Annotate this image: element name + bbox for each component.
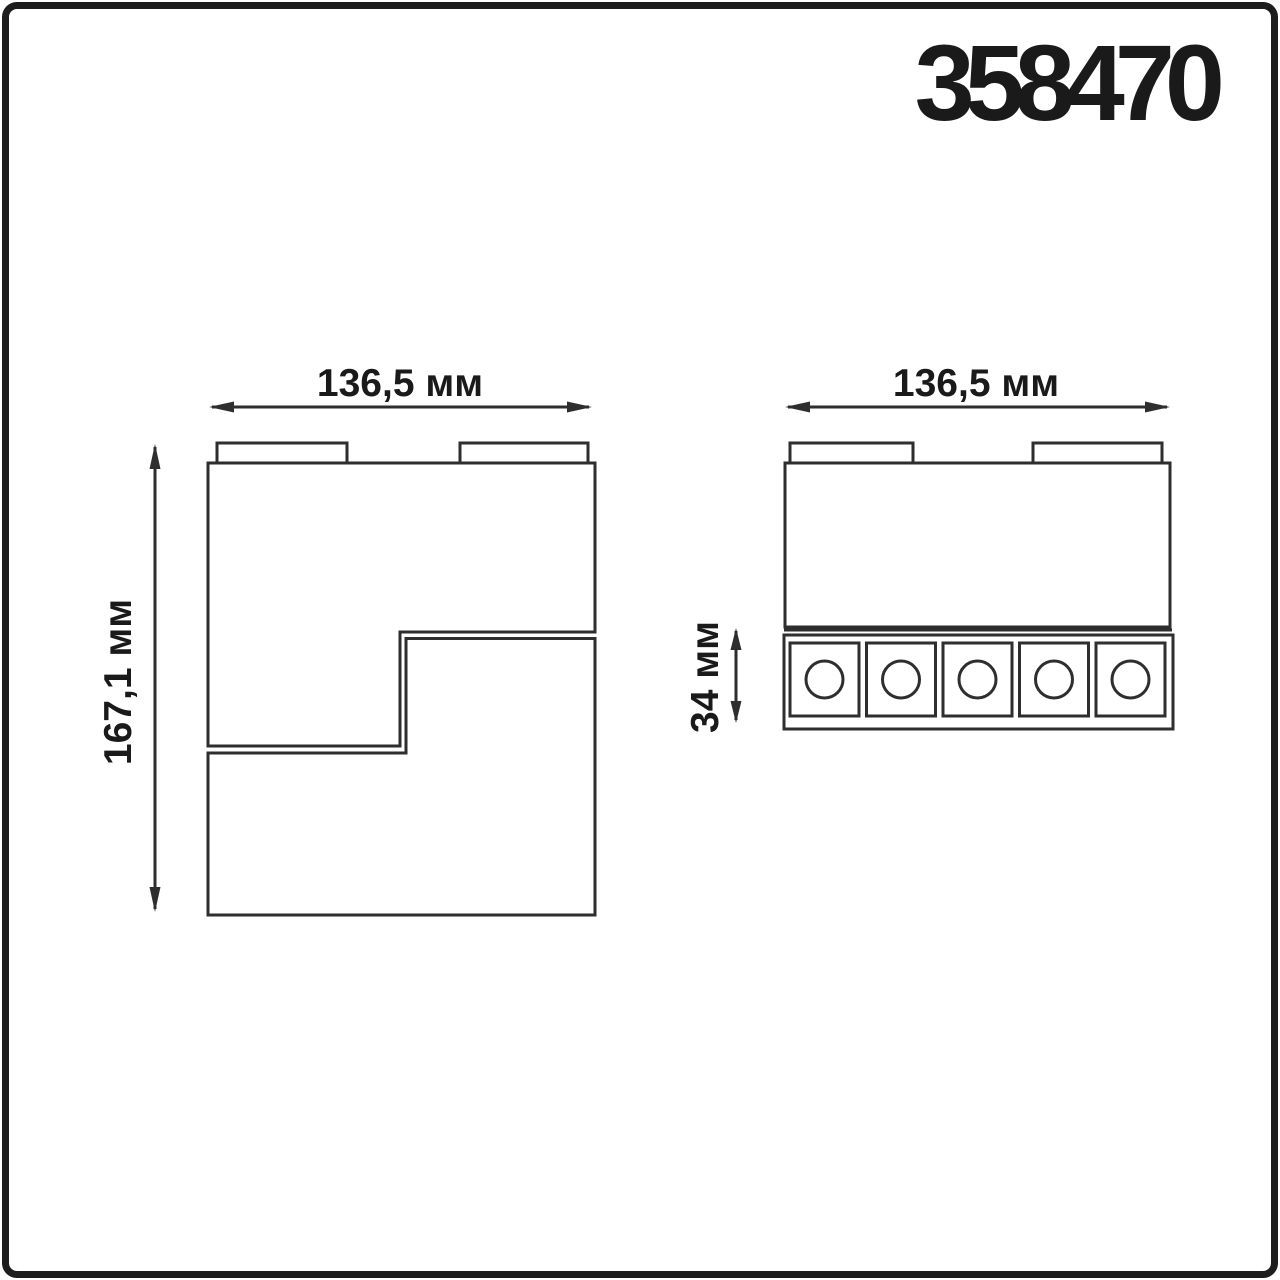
side-width-dimension-arrow-icon xyxy=(785,402,1170,413)
led-lens-circle xyxy=(883,661,920,698)
led-lens-circle xyxy=(1112,661,1149,698)
drawing-sheet: 358470 136,5 мм 136,5 мм 167,1 мм 34 мм xyxy=(0,0,1280,1280)
front-mount-tab-right xyxy=(460,443,588,463)
side-body xyxy=(785,463,1170,627)
side-mount-tab-right xyxy=(1033,443,1162,463)
led-row xyxy=(790,643,1165,716)
front-view-drawing xyxy=(150,402,596,916)
led-lens-circle xyxy=(806,661,843,698)
side-mount-tab-left xyxy=(790,443,913,463)
front-mount-tab-left xyxy=(217,443,347,463)
led-lens-circle xyxy=(1036,661,1073,698)
led-lens-circle xyxy=(959,661,996,698)
front-height-dimension-arrow-icon xyxy=(150,444,161,912)
front-width-dimension-arrow-icon xyxy=(209,402,592,413)
led-height-dimension-arrow-icon xyxy=(731,628,742,723)
side-view-drawing xyxy=(731,402,1174,730)
technical-drawing xyxy=(0,0,1280,1280)
